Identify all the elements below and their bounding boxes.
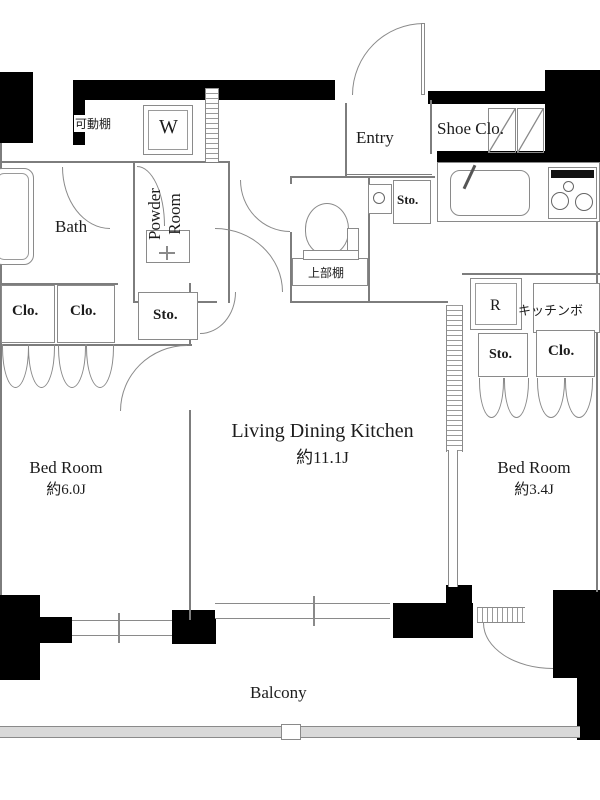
label-ldk-size: 約11.1J <box>195 443 450 468</box>
folding-door <box>565 378 593 418</box>
hand-sink-basin <box>373 192 385 204</box>
label-refrigerator: R <box>490 297 501 315</box>
wall-ldk-top <box>290 301 448 303</box>
label-storage-entry: Sto. <box>397 192 418 208</box>
bathtub <box>0 168 34 265</box>
label-balcony: Balcony <box>250 683 307 703</box>
wall-pillar-top-right <box>545 70 600 162</box>
wall-bath-top <box>0 161 230 163</box>
window-ldk <box>215 603 390 619</box>
wall-pillar-bottom-left <box>0 595 40 680</box>
wall-bath-powder-divider <box>133 161 135 303</box>
vanity-faucet <box>159 252 175 254</box>
wall-bedroom-left-lower <box>189 410 191 620</box>
door-arc-bedroom-left <box>120 345 187 411</box>
label-closet-left-1: Clo. <box>12 303 38 320</box>
label-bedroom-left: Bed Room 約6.0J <box>10 458 122 499</box>
window-meeting-rail <box>118 613 120 643</box>
wall-toilet-top <box>290 176 435 178</box>
stove-burner-left <box>551 192 569 210</box>
door-leaf-entry <box>421 23 425 95</box>
label-closet-left-2: Clo. <box>70 303 96 320</box>
wall-partition-lower <box>448 450 458 587</box>
label-bath: Bath <box>55 217 87 237</box>
wall-pillar-bottom-right-ext <box>577 678 600 740</box>
label-shoe-closet: Shoe Clo. <box>437 119 504 139</box>
label-powder-room: Powder Room <box>145 179 189 249</box>
toilet-base <box>303 250 359 260</box>
label-ldk-name: Living Dining Kitchen <box>195 420 450 443</box>
folding-door <box>28 344 55 388</box>
door-arc-entry <box>352 23 424 95</box>
door-arc-storage-hall <box>200 292 236 334</box>
toilet-bowl <box>305 203 349 255</box>
folding-door <box>537 378 565 418</box>
door-arc-hall-to-ldk <box>215 228 283 292</box>
label-storage-right: Sto. <box>489 347 512 363</box>
label-bedroom-right: Bed Room 約3.4J <box>478 458 590 499</box>
folding-door <box>504 378 529 418</box>
door-arc-bedroom-right-balcony <box>483 623 553 669</box>
wall-partition-end <box>446 585 472 625</box>
label-bedroom-right-name: Bed Room <box>478 458 590 478</box>
label-washing-machine: W <box>159 116 178 139</box>
wall-bottom-step-left <box>40 617 72 643</box>
door-frame-bedroom-right <box>477 607 525 623</box>
bathtub-inner <box>0 173 29 260</box>
wall-top-right-band <box>428 91 548 104</box>
label-closet-right: Clo. <box>548 343 574 360</box>
label-entry: Entry <box>356 128 394 148</box>
stove-burner-small <box>563 181 574 192</box>
door-arc-toilet <box>240 180 290 232</box>
window-meeting-rail <box>313 596 315 626</box>
wall-entry-shoe-divider <box>430 100 432 154</box>
label-upper-shelf: 上部棚 <box>308 264 344 281</box>
balcony-railing-post <box>281 724 301 740</box>
wall-pillar-top-left <box>0 72 33 143</box>
folding-door <box>479 378 504 418</box>
wall-entry-step <box>345 174 432 175</box>
folding-door <box>2 344 29 388</box>
label-kitchen-board: キッチンボ <box>518 300 583 319</box>
label-movable-shelf: 可動棚 <box>74 115 112 132</box>
wall-bottom-step-mid <box>172 610 216 644</box>
kitchen-sink <box>450 170 530 216</box>
window-bedroom-left <box>72 620 172 636</box>
label-bedroom-right-size: 約3.4J <box>478 478 590 499</box>
wall-right-outer <box>596 162 598 592</box>
label-bedroom-left-size: 約6.0J <box>10 478 122 499</box>
folding-door <box>86 344 114 388</box>
floor-plan: 可動棚 W Bath Powder Room Entry Shoe Clo. S… <box>0 0 600 800</box>
wall-pillar-bottom-right <box>553 590 600 678</box>
label-storage-hall: Sto. <box>153 307 178 324</box>
label-ldk: Living Dining Kitchen 約11.1J <box>195 420 450 468</box>
folding-door <box>58 344 86 388</box>
wall-duct-hatch <box>205 88 219 162</box>
wall-right-rooms-top <box>462 273 600 275</box>
label-bedroom-left-name: Bed Room <box>10 458 122 478</box>
shoe-shelf <box>517 108 544 153</box>
wall-entry-left <box>345 103 347 176</box>
stove-burner-right <box>575 193 593 211</box>
stove-grill <box>551 170 594 178</box>
wall-top-left-band <box>73 80 335 100</box>
